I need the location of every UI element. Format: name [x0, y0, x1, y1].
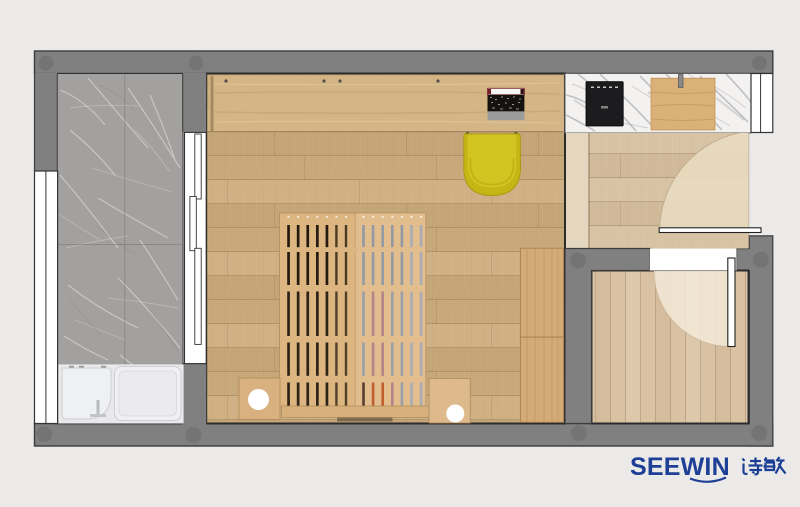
- svg-text:SEEWIN: SEEWIN: [630, 453, 730, 481]
